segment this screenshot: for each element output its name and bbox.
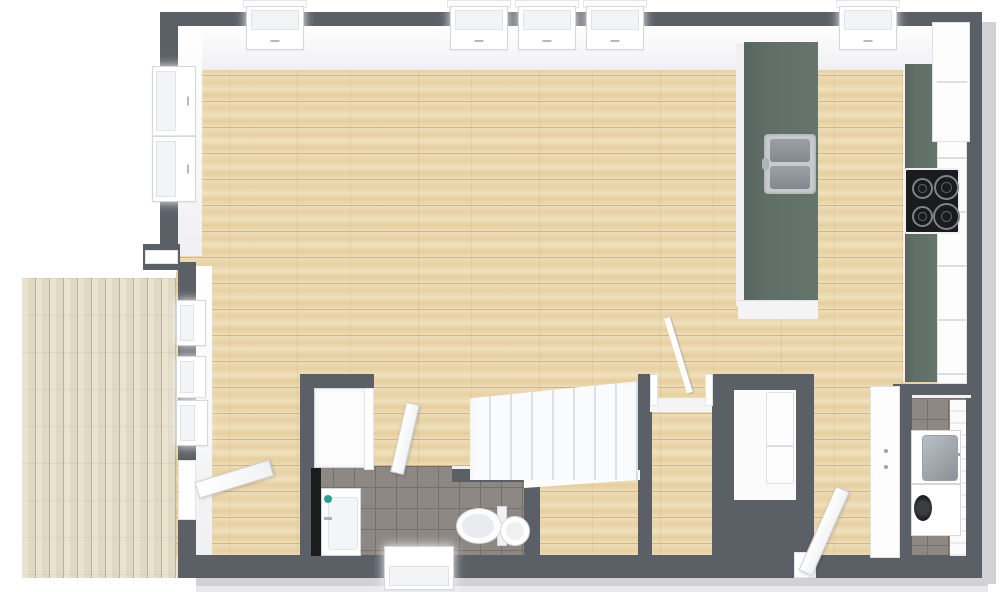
vanity-faucet bbox=[324, 517, 332, 520]
window-top-5 bbox=[839, 6, 897, 50]
window-pane bbox=[156, 71, 176, 131]
kitchen-island-base bbox=[738, 300, 818, 319]
corner-basin bbox=[500, 516, 530, 546]
window-pane bbox=[591, 10, 639, 30]
wardrobe-handle-1 bbox=[884, 449, 888, 453]
left-wall-jog-cap bbox=[145, 250, 178, 264]
utility-sink-basin bbox=[922, 435, 958, 481]
floor-plan-canvas bbox=[0, 0, 1000, 592]
bottom-exterior-wall bbox=[178, 555, 982, 578]
deck-door-jamb bbox=[178, 460, 196, 520]
vanity-unit bbox=[321, 488, 361, 556]
window-handle bbox=[187, 165, 189, 174]
shower-tray bbox=[314, 388, 366, 468]
window-pane bbox=[389, 566, 449, 586]
washing-machine bbox=[911, 484, 961, 536]
sink-basin-bottom bbox=[770, 166, 810, 189]
window-top-2 bbox=[450, 6, 508, 50]
closet-shelf-unit bbox=[766, 392, 794, 484]
window-pane bbox=[180, 361, 194, 393]
hall-doorway-threshold bbox=[650, 398, 712, 412]
window-pane bbox=[180, 405, 195, 441]
toilet-seat bbox=[462, 514, 494, 538]
window-left-upper-1 bbox=[152, 66, 196, 136]
wardrobe-handle-2 bbox=[884, 465, 888, 469]
ground-shadow-right bbox=[982, 22, 996, 584]
cabinet-seam bbox=[937, 81, 967, 83]
cooktop-burner-3 bbox=[912, 206, 933, 227]
utility-sink-unit bbox=[911, 430, 961, 484]
hall-doorway-jamb-right bbox=[705, 374, 713, 406]
window-handle bbox=[187, 97, 189, 106]
cooktop-burner-1 bbox=[912, 178, 933, 199]
window-handle bbox=[611, 40, 620, 42]
window-handle bbox=[271, 40, 280, 42]
bathroom-window-bottom bbox=[384, 546, 454, 590]
window-pane bbox=[251, 10, 299, 30]
island-double-sink bbox=[764, 134, 816, 194]
ground-shadow-bottom bbox=[196, 578, 988, 586]
window-handle bbox=[543, 40, 552, 42]
window-pane bbox=[180, 305, 194, 341]
deck-floor bbox=[22, 278, 196, 578]
vanity-sink-basin bbox=[328, 497, 358, 550]
window-pane bbox=[844, 10, 892, 30]
bathroom-door-jamb bbox=[364, 388, 374, 470]
washer-door bbox=[914, 495, 932, 521]
window-top-3 bbox=[518, 6, 576, 50]
window-pane bbox=[455, 10, 503, 30]
window-left-lower-3 bbox=[176, 400, 208, 446]
window-handle bbox=[475, 40, 484, 42]
cooktop bbox=[904, 168, 960, 234]
window-left-lower-1 bbox=[176, 300, 206, 346]
bathroom-side-panel bbox=[311, 468, 321, 556]
window-left-upper-2 bbox=[152, 136, 196, 202]
window-pane bbox=[523, 10, 571, 30]
utility-faucet bbox=[952, 453, 960, 456]
kitchen-tall-cabinet bbox=[932, 22, 970, 142]
toilet-bowl bbox=[456, 508, 502, 544]
window-handle bbox=[864, 40, 873, 42]
window-left-lower-2 bbox=[176, 356, 206, 398]
hall-wardrobe bbox=[870, 386, 900, 558]
basin-bowl bbox=[506, 522, 524, 540]
window-top-4 bbox=[586, 6, 644, 50]
cooktop-burner-2 bbox=[934, 175, 959, 200]
cooktop-burner-4 bbox=[933, 203, 960, 230]
window-pane bbox=[156, 141, 176, 197]
shower-top-wall bbox=[300, 374, 374, 388]
sink-basin-top bbox=[770, 139, 810, 162]
ground-light-bottom bbox=[196, 586, 988, 592]
window-top-1 bbox=[246, 6, 304, 50]
soap-dispenser bbox=[324, 495, 332, 503]
hall-doorway-jamb-left bbox=[650, 374, 658, 406]
island-faucet bbox=[762, 158, 769, 170]
